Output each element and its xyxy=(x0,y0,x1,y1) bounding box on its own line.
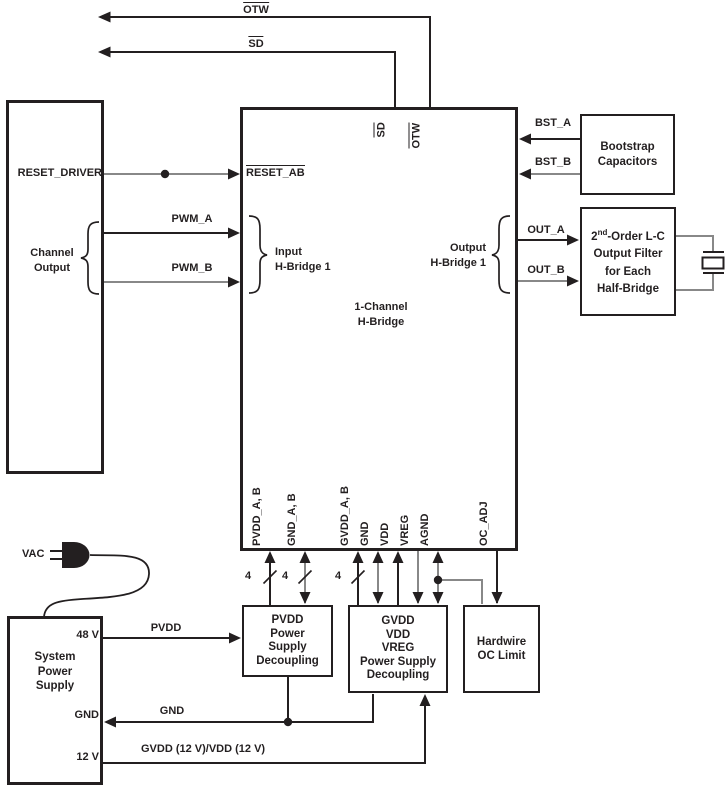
bus-width-label-3: 4 xyxy=(335,570,341,582)
gnd-junction-dot xyxy=(284,718,292,726)
output-group-brace xyxy=(492,216,510,293)
reset-driver-wire xyxy=(104,169,240,180)
gvdd-ab-pin-label: GVDD_A, B xyxy=(339,486,352,546)
speaker-icon xyxy=(676,236,724,290)
oc-adj-pin-wire xyxy=(492,551,503,604)
vac-label: VAC xyxy=(22,548,44,560)
pvdd-rail-label: PVDD xyxy=(151,622,182,634)
otw-top-label: OTW xyxy=(243,2,269,16)
vdd-pin-label: VDD xyxy=(379,523,392,546)
pvdd-rail-arrowhead xyxy=(229,633,241,644)
bus-width-label-2: 4 xyxy=(282,570,288,582)
output-group-label: Output H-Bridge 1 xyxy=(396,241,486,270)
agnd-junction-dot xyxy=(434,576,442,584)
vreg-pin-wire xyxy=(413,551,424,604)
port-gnd-label: GND xyxy=(59,709,99,721)
gvdd-rail-arrowhead xyxy=(420,694,431,706)
bst-b-label: BST_B xyxy=(535,156,571,168)
port-48v-label: 48 V xyxy=(59,629,99,641)
input-group-brace xyxy=(249,216,267,293)
out-b-label: OUT_B xyxy=(527,264,564,276)
out-b-wire xyxy=(518,276,579,287)
gnd-rail-arrowhead xyxy=(104,717,116,728)
block-diagram: Bootstrap Capacitors 2nd-Order L-C Outpu… xyxy=(0,0,727,792)
pwm-b-arrowhead xyxy=(228,277,240,288)
pwm-a-wire xyxy=(104,228,240,239)
out-b-arrowhead xyxy=(567,276,579,287)
input-group-label: Input H-Bridge 1 xyxy=(275,245,331,274)
vdd-pin-wire xyxy=(393,551,404,605)
pvdd-ab-pin-label: PVDD_A, B xyxy=(251,487,264,546)
gnd-pin-wire xyxy=(373,551,384,604)
gnd-ab-pin-wire xyxy=(299,551,312,604)
power-plug-icon xyxy=(44,542,149,617)
pwm-b-label: PWM_B xyxy=(172,262,213,274)
reset-driver-label: RESET_DRIVER xyxy=(8,167,102,179)
main-box-title: 1-Channel H-Bridge xyxy=(354,300,407,330)
gnd-ab-pin-label: GND_A, B xyxy=(286,493,299,546)
reset-junction-dot xyxy=(161,170,169,178)
agnd-pin-label: AGND xyxy=(419,514,432,546)
bus-width-label-1: 4 xyxy=(245,570,251,582)
pwm-a-label: PWM_A xyxy=(172,213,213,225)
wire-layer xyxy=(0,0,727,792)
out-a-label: OUT_A xyxy=(527,224,564,236)
pwm-a-arrowhead xyxy=(228,228,240,239)
channel-output-brace xyxy=(81,222,99,294)
agnd-branch-wire xyxy=(438,580,482,604)
gvdd-rail-label: GVDD (12 V)/VDD (12 V) xyxy=(141,743,265,755)
otw-pin-label: OTW xyxy=(409,123,424,149)
power-cord xyxy=(44,555,149,617)
reset-arrowhead xyxy=(228,169,240,180)
sd-top-label: SD xyxy=(248,36,263,50)
bst-a-wire xyxy=(519,134,580,145)
gvdd-ab-pin-wire xyxy=(352,551,365,605)
otw-arrowhead xyxy=(98,12,111,23)
sd-arrowhead xyxy=(98,47,111,58)
bst-b-wire xyxy=(519,169,580,180)
bst-a-arrowhead xyxy=(519,134,531,145)
agnd-pin-wire xyxy=(433,551,483,604)
pvdd-ab-pin-wire xyxy=(264,551,277,605)
out-a-wire xyxy=(518,235,579,246)
channel-output-label: Channel Output xyxy=(30,246,73,275)
bst-b-arrowhead xyxy=(519,169,531,180)
gnd-rail-wire xyxy=(104,677,373,728)
pwm-b-wire xyxy=(104,277,240,288)
gnd-pin-label: GND xyxy=(359,522,372,546)
oc-adj-pin-label: OC_ADJ xyxy=(478,501,491,546)
pvdd-rail-wire xyxy=(103,633,241,644)
gnd-rail-label: GND xyxy=(160,705,184,717)
vreg-pin-label: VREG xyxy=(399,515,412,546)
sd-wire xyxy=(98,47,395,108)
out-a-arrowhead xyxy=(567,235,579,246)
otw-wire xyxy=(98,12,430,108)
port-12v-label: 12 V xyxy=(59,751,99,763)
bst-a-label: BST_A xyxy=(535,117,571,129)
reset-ab-pin-label: RESET_AB xyxy=(246,165,305,179)
sd-pin-label: SD xyxy=(374,122,389,137)
